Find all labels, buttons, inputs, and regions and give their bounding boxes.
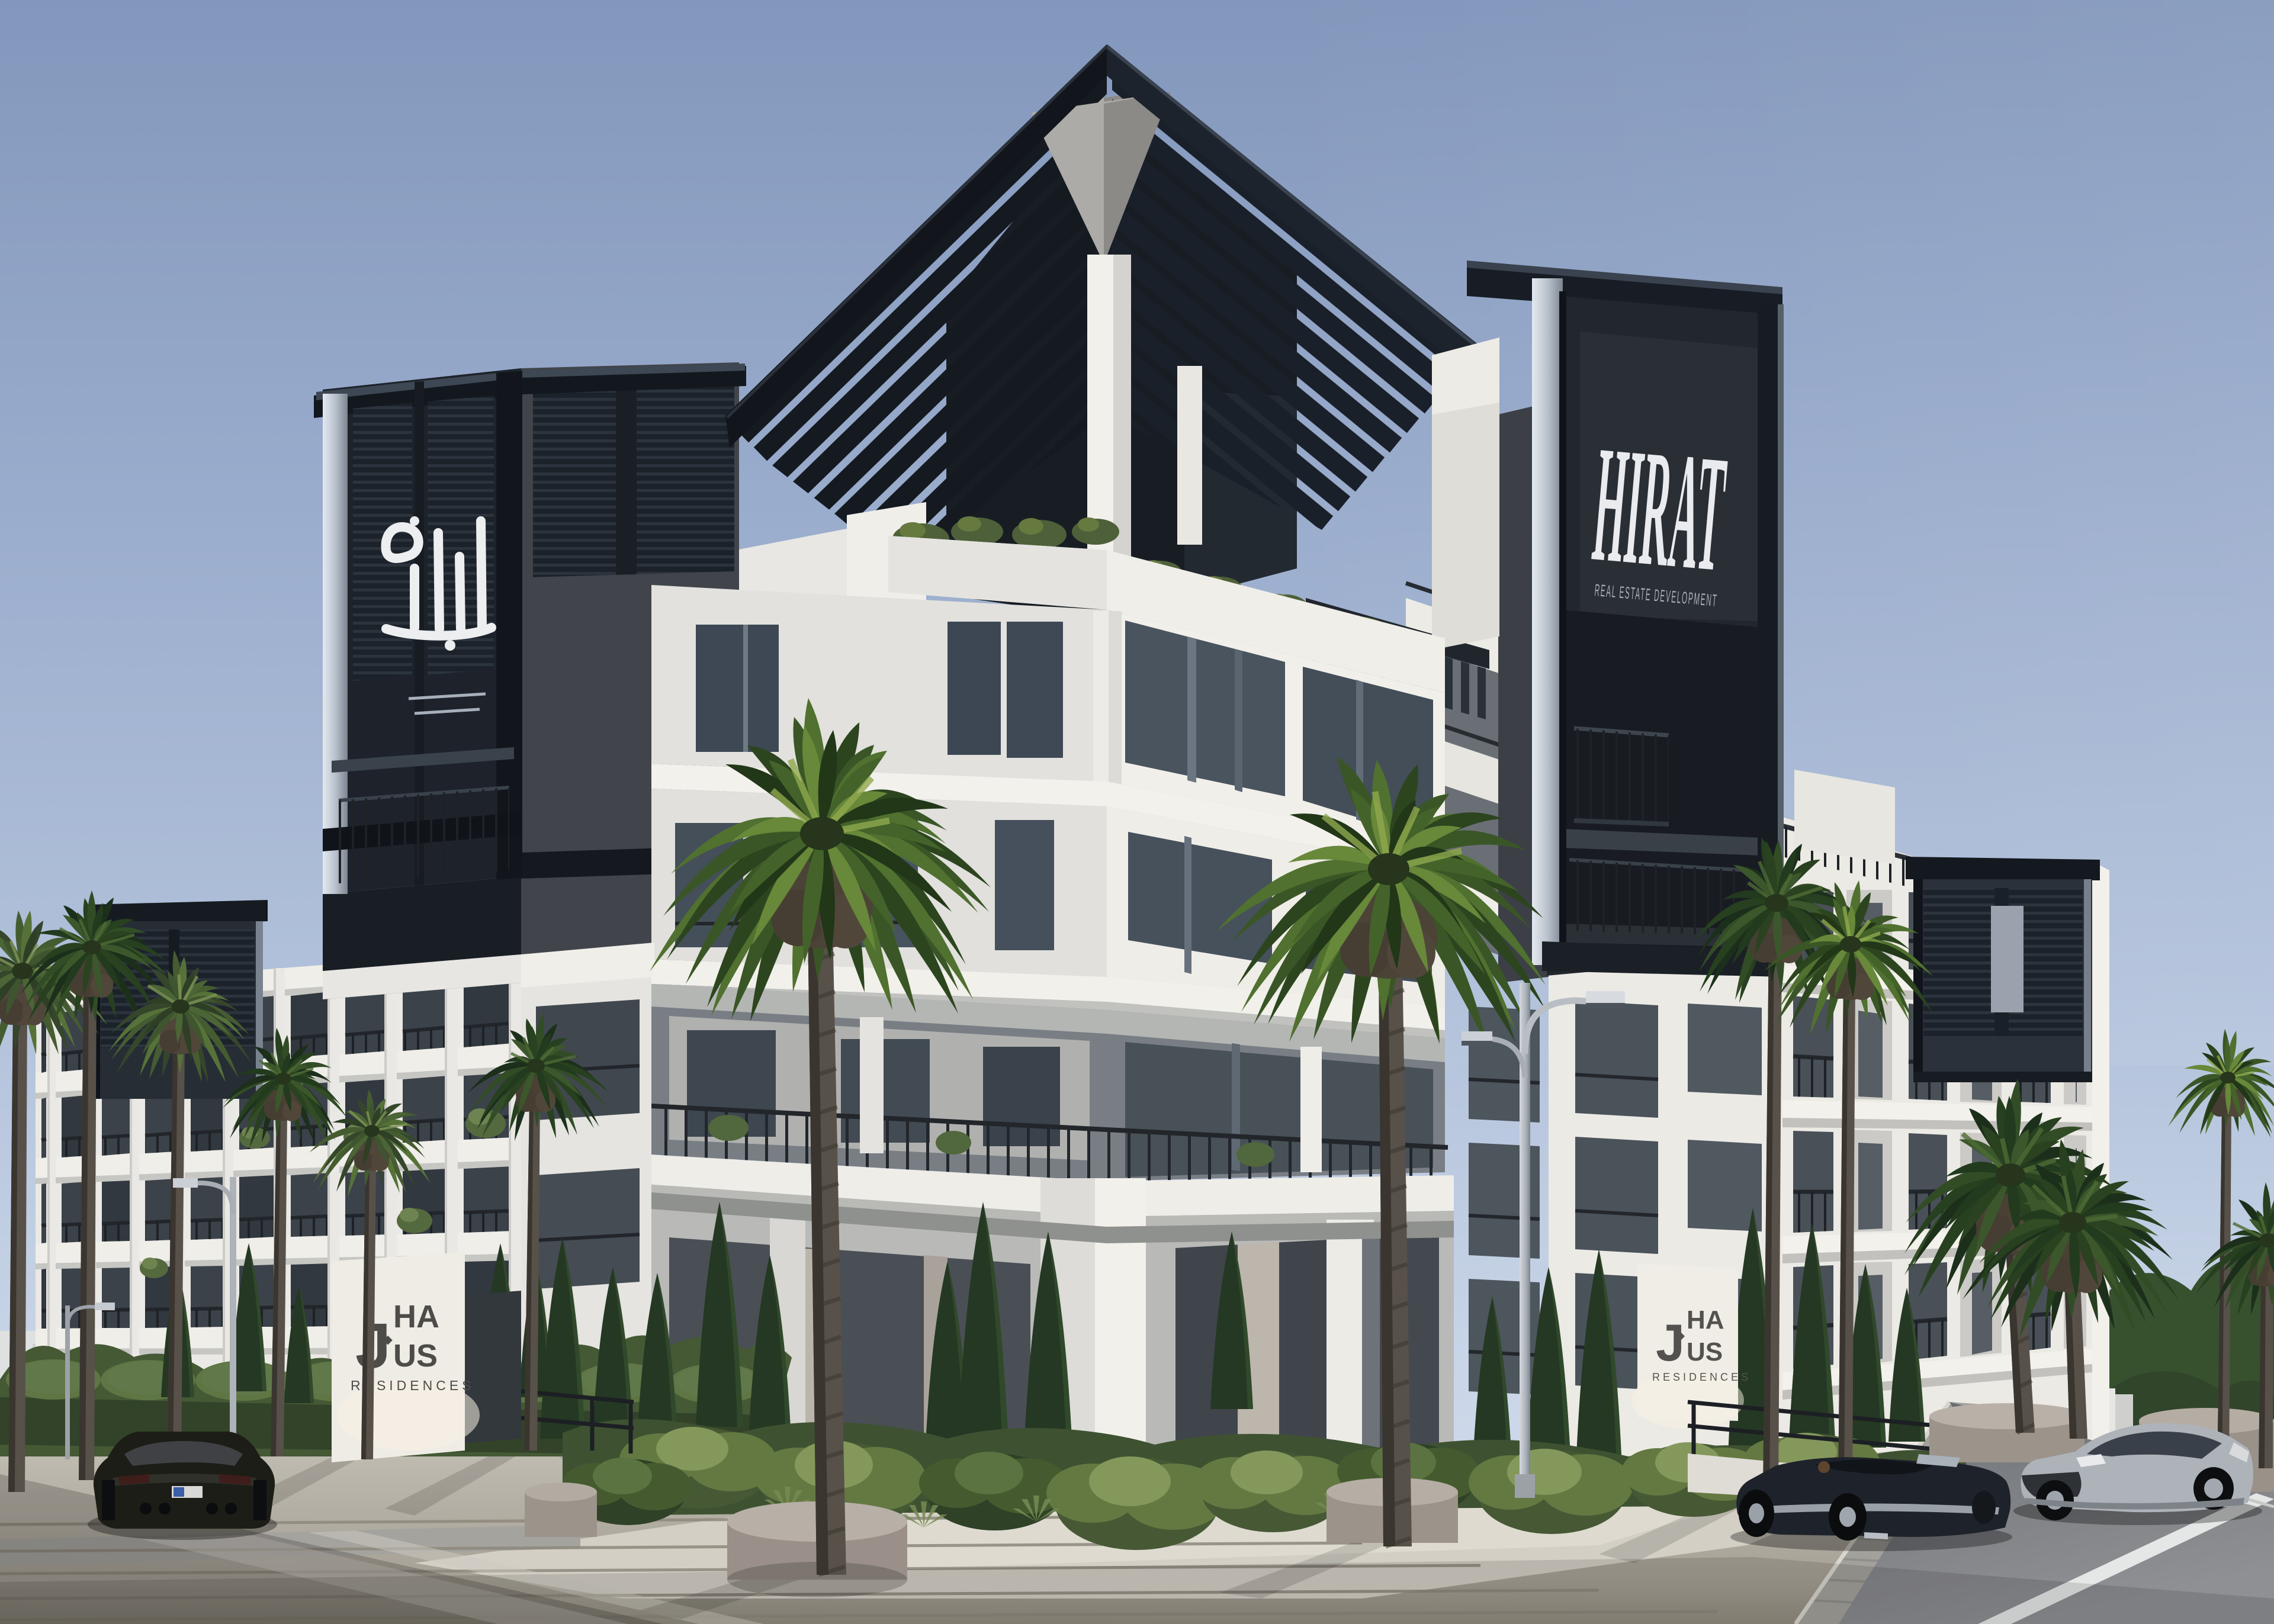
svg-text:US: US bbox=[393, 1338, 438, 1374]
svg-text:J: J bbox=[1656, 1313, 1685, 1372]
svg-text:US: US bbox=[1687, 1337, 1723, 1366]
svg-text:HIRAT: HIRAT bbox=[1588, 412, 1733, 607]
svg-text:HA: HA bbox=[393, 1299, 439, 1334]
svg-text:HA: HA bbox=[1687, 1305, 1724, 1334]
svg-text:RESIDENCES: RESIDENCES bbox=[1652, 1371, 1751, 1383]
